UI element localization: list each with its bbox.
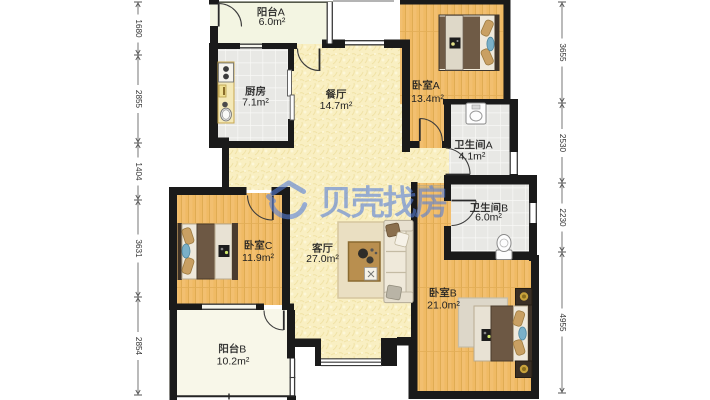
svg-text:A: A xyxy=(433,80,440,92)
svg-text:4.1m²: 4.1m² xyxy=(459,151,486,163)
svg-text:B: B xyxy=(450,287,457,299)
svg-text:7.1m²: 7.1m² xyxy=(242,97,269,109)
svg-text:3631: 3631 xyxy=(134,239,143,258)
svg-text:10.2m²: 10.2m² xyxy=(217,356,250,368)
svg-text:1680: 1680 xyxy=(134,19,143,38)
svg-text:3655: 3655 xyxy=(558,43,567,62)
svg-text:2855: 2855 xyxy=(134,90,143,109)
svg-text:21.0m²: 21.0m² xyxy=(427,300,460,312)
svg-text:6.0m²: 6.0m² xyxy=(475,212,502,224)
svg-text:C: C xyxy=(265,240,273,252)
svg-text:2530: 2530 xyxy=(558,134,567,153)
svg-text:1404: 1404 xyxy=(134,162,143,181)
svg-text:2854: 2854 xyxy=(134,337,143,356)
svg-text:4955: 4955 xyxy=(558,313,567,332)
svg-text:27.0m²: 27.0m² xyxy=(306,253,339,265)
svg-text:B: B xyxy=(239,343,246,355)
svg-text:14.7m²: 14.7m² xyxy=(320,100,353,112)
svg-text:B: B xyxy=(501,202,508,214)
svg-text:A: A xyxy=(486,139,493,151)
svg-text:11.9m²: 11.9m² xyxy=(242,252,274,264)
svg-text:6.0m²: 6.0m² xyxy=(259,16,286,28)
svg-text:13.4m²: 13.4m² xyxy=(411,93,444,105)
svg-text:2230: 2230 xyxy=(558,208,567,227)
